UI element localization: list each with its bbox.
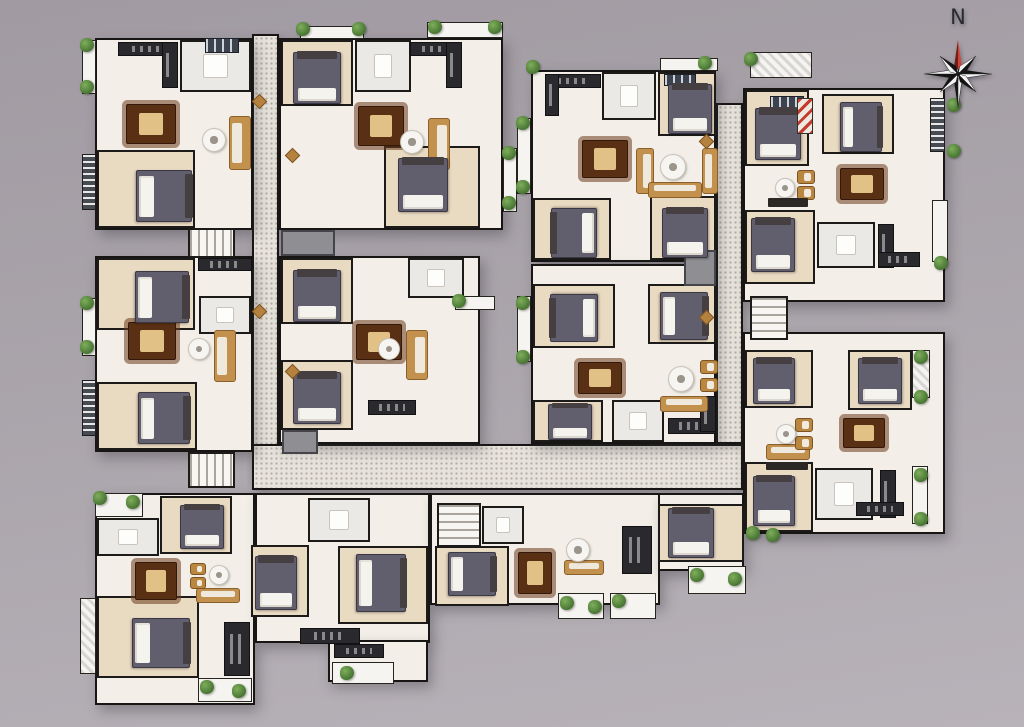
bed [551,208,597,258]
coffee-table [776,424,796,444]
tv-cabinet [768,198,808,207]
kitchen-counter [300,628,360,644]
armchair [700,360,718,374]
kitchen-counter [334,644,384,658]
bed [448,552,496,596]
coffee-table [566,538,590,562]
plant [746,526,760,540]
bed [662,208,708,258]
bed [858,358,902,404]
corridor [716,103,743,444]
bed [398,158,448,212]
balcony-railing [750,52,812,78]
plant [914,512,928,526]
dining-table [518,552,552,594]
plant [232,684,246,698]
tv-cabinet [766,462,808,470]
plant [80,38,94,52]
bathroom [408,258,464,298]
bed [135,271,189,323]
bed [753,476,795,526]
coffee-table [400,130,424,154]
plant [588,600,602,614]
corridor [252,444,743,490]
bed [668,84,712,134]
elevator-shaft [281,230,335,256]
bed [356,554,406,612]
balcony [932,200,948,262]
plant [452,294,466,308]
balcony-railing [80,598,96,674]
staircase [188,452,235,488]
dining-table [578,362,622,394]
plant [340,666,354,680]
floor-plan-canvas [0,0,1024,727]
armchair [795,418,813,432]
bed [550,294,598,342]
plant [80,296,94,310]
plant [516,116,530,130]
compass-north-label: N [950,5,966,29]
plant [914,468,928,482]
kitchen-counter [622,526,652,574]
bathroom [612,400,664,442]
coffee-table [775,178,795,198]
armchair [700,378,718,392]
bed [136,170,192,222]
bed [132,618,190,668]
bathroom [308,498,370,542]
plant [698,56,712,70]
plant [690,568,704,582]
coffee-table [209,565,229,585]
kitchen-counter [162,42,178,88]
coffee-table [660,154,686,180]
plant [352,22,366,36]
bed [668,508,714,558]
louver-window [82,380,96,436]
plant [744,52,758,66]
plant [93,491,107,505]
staircase [188,228,235,258]
kitchen-counter [224,622,250,676]
plant [612,594,626,608]
dining-table [358,106,404,146]
armchair [190,563,206,575]
bed [293,270,341,322]
sofa [406,330,428,380]
plant [200,680,214,694]
plant [560,596,574,610]
plant [516,296,530,310]
plant [80,340,94,354]
plant [947,144,961,158]
elevator-shaft [282,430,318,454]
sofa [648,182,702,198]
bathroom [97,518,159,556]
bathroom [817,222,875,268]
kitchen-counter [856,502,904,516]
bed [293,52,341,104]
kitchen-counter [446,42,462,88]
bed [755,108,801,160]
armchair [797,170,815,184]
plant [80,80,94,94]
dining-table [840,168,884,200]
bed [840,102,882,152]
kitchen-counter [878,252,920,267]
compass-hub [956,72,960,76]
plant [914,390,928,404]
kitchen-counter [198,258,252,271]
dining-table [126,104,176,144]
dining-table [582,140,628,178]
wardrobe [797,98,813,134]
kitchen-counter [545,74,559,116]
bed [293,372,341,424]
kitchen-counter [368,400,416,415]
plant [488,20,502,34]
plant [526,60,540,74]
plant [502,196,516,210]
armchair [190,577,206,589]
bed [548,404,592,440]
plant [766,528,780,542]
bed [138,392,190,444]
sofa [214,330,236,382]
bathroom [199,296,251,334]
coffee-table [378,338,400,360]
sofa [564,560,604,575]
coffee-table [202,128,226,152]
plant [296,22,310,36]
bathroom [482,506,524,544]
bed [753,358,795,404]
dining-table [843,418,885,448]
bathroom [355,40,411,92]
plant [502,146,516,160]
plant [516,180,530,194]
plant [728,572,742,586]
bed [255,556,297,610]
plant [428,20,442,34]
sofa [702,148,718,194]
sofa [196,588,240,603]
dining-table [128,322,176,360]
plant [516,350,530,364]
plant [914,350,928,364]
bed [751,218,795,272]
plant [934,256,948,270]
coffee-table [188,338,210,360]
dining-table [135,562,177,600]
armchair [795,436,813,450]
sofa [660,396,708,412]
coffee-table [668,366,694,392]
bathroom [602,72,656,120]
staircase [750,296,788,340]
louver-window [82,154,96,210]
plant [126,495,140,509]
skylight-panel [205,38,239,53]
bed [180,505,224,549]
compass-icon: N [912,2,1004,124]
sofa [229,116,251,170]
staircase [437,503,481,547]
